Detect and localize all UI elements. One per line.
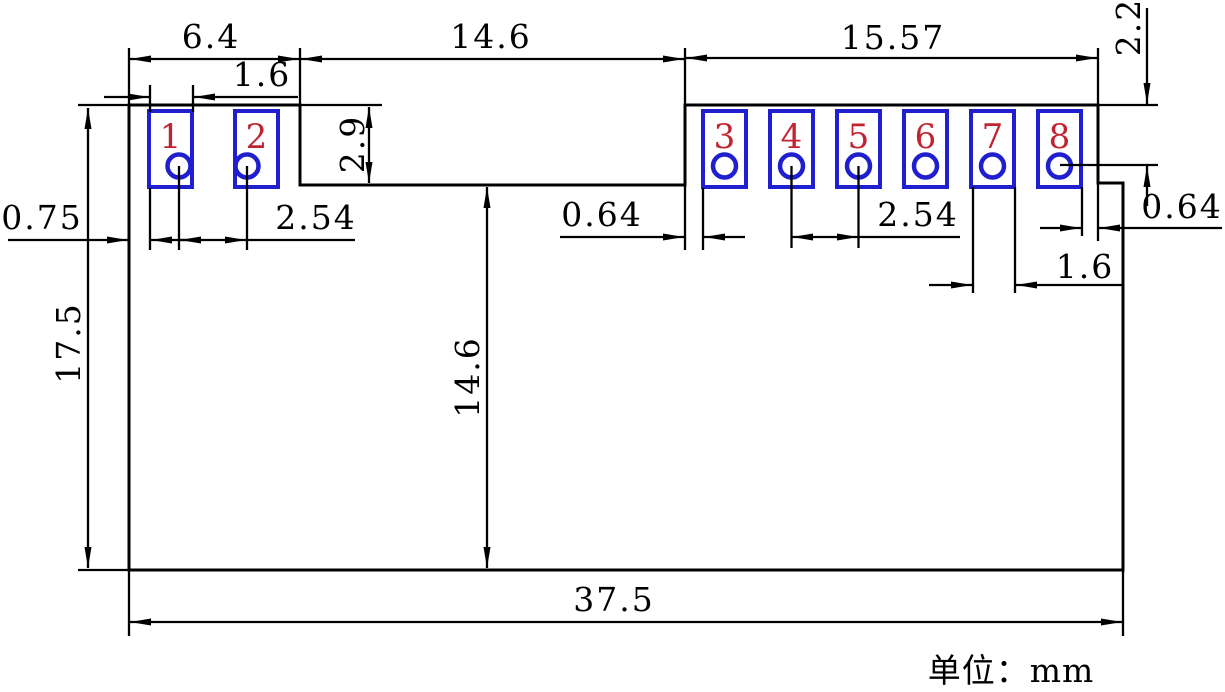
dim-label-left-pitch: 2.54 xyxy=(275,198,356,237)
dim-label-notch-width: 14.6 xyxy=(450,17,531,56)
pad-8-number: 8 xyxy=(1049,117,1071,157)
dimension-15.57-right-tab-width: 15.57 xyxy=(686,18,1097,58)
dimension-2.54-left-pitch: 2.54 xyxy=(180,198,357,240)
pad-numbers: 1 2 3 4 5 6 7 8 xyxy=(160,117,1071,157)
dimension-2.54-right-pitch: 2.54 xyxy=(792,195,960,237)
dim-label-left-tab-width: 6.4 xyxy=(182,17,240,56)
dim-label-body-width: 37.5 xyxy=(573,580,654,619)
dim-label-right-tab-width: 15.57 xyxy=(841,18,945,57)
unit-label: 单位：mm xyxy=(928,651,1095,690)
dim-label-notch-to-bottom: 14.6 xyxy=(448,336,487,417)
dim-label-right-pitch: 2.54 xyxy=(877,195,958,234)
pad-3-number: 3 xyxy=(714,117,736,157)
dim-label-pad8-to-edge: 0.64 xyxy=(1141,187,1222,226)
pad-5-number: 5 xyxy=(848,117,870,157)
dim-label-pad7-width: 1.6 xyxy=(1056,247,1114,286)
dim-label-notch-to-pad3: 0.64 xyxy=(561,195,642,234)
pad-1-number: 1 xyxy=(160,117,182,157)
pad-4-number: 4 xyxy=(781,117,803,157)
dimension-2.9-notch-depth: 2.9 xyxy=(333,107,372,183)
dimension-1.6-pad1-width: 1.6 xyxy=(104,55,298,97)
pad-2-number: 2 xyxy=(246,117,268,157)
dim-label-top-to-hole: 2.2 xyxy=(1109,0,1148,56)
pad-7-hole xyxy=(981,155,1004,178)
pad-6-hole xyxy=(914,155,937,178)
dimension-0.64-pad8-to-edge: 0.64 xyxy=(1040,187,1223,228)
dimension-14.6-notch-width: 14.6 xyxy=(301,17,684,59)
dim-label-body-height: 17.5 xyxy=(49,302,88,383)
dimension-14.6-notch-to-bottom: 14.6 xyxy=(448,187,487,568)
dimension-2.2-top-to-hole: 2.2 xyxy=(1109,0,1148,206)
dimension-0.75-edge-to-pad1: 0.75 xyxy=(1,198,192,240)
pad-6-number: 6 xyxy=(915,117,937,157)
footprint-dimension-drawing: 6.4 1.6 14.6 15.57 2.2 2.9 0.75 2.54 xyxy=(0,0,1225,692)
dimension-37.5-body-width: 37.5 xyxy=(130,580,1122,622)
dim-label-edge-to-pad1: 0.75 xyxy=(1,198,82,237)
pad-7-number: 7 xyxy=(982,117,1004,157)
dimension-17.5-body-height: 17.5 xyxy=(49,108,88,568)
dimension-1.6-pad7-width: 1.6 xyxy=(929,247,1123,286)
dimension-6.4-left-tab-width: 6.4 xyxy=(130,17,299,59)
dimension-0.64-notch-to-pad3: 0.64 xyxy=(560,195,745,237)
dim-label-pad1-width: 1.6 xyxy=(233,55,291,94)
pad-3-hole xyxy=(713,155,736,178)
pads xyxy=(149,111,1081,187)
dim-label-notch-depth: 2.9 xyxy=(333,115,372,173)
